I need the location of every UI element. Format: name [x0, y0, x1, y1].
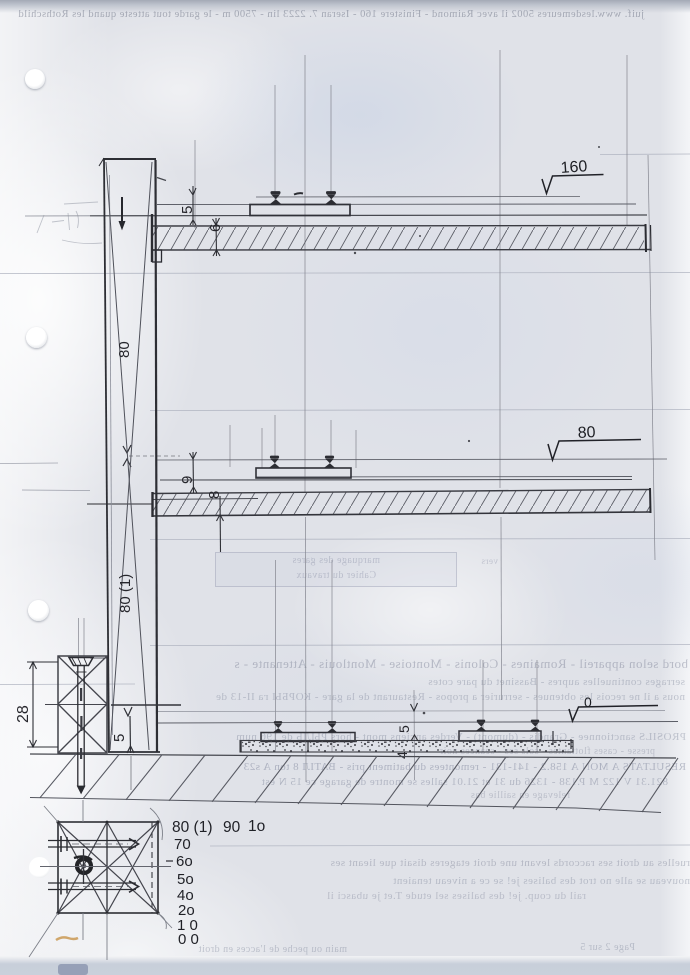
svg-text:80 (1): 80 (1) — [117, 574, 134, 613]
svg-text:90: 90 — [223, 819, 241, 836]
svg-text:1o: 1o — [248, 818, 265, 835]
svg-text:70: 70 — [174, 836, 191, 853]
svg-text:80: 80 — [577, 424, 596, 442]
svg-text:0: 0 — [584, 694, 592, 710]
svg-text:9: 9 — [179, 476, 196, 484]
svg-text:0 0: 0 0 — [178, 931, 199, 948]
svg-text:160: 160 — [560, 158, 588, 177]
svg-text:5: 5 — [111, 734, 128, 742]
svg-text:6: 6 — [207, 224, 224, 232]
svg-text:28: 28 — [15, 705, 32, 723]
svg-text:80: 80 — [116, 341, 133, 358]
svg-text:6o: 6o — [176, 853, 193, 870]
svg-text:5: 5 — [179, 206, 196, 214]
svg-text:4: 4 — [394, 751, 410, 759]
svg-text:80 (1): 80 (1) — [172, 819, 213, 836]
svg-text:5: 5 — [396, 725, 412, 733]
svg-text:5o: 5o — [177, 871, 194, 888]
svg-text:8: 8 — [206, 491, 223, 499]
